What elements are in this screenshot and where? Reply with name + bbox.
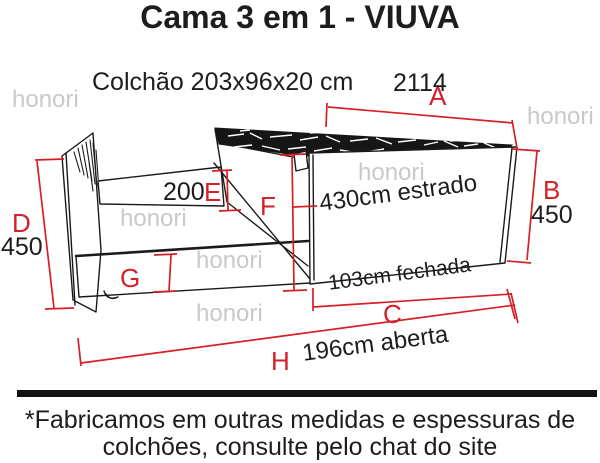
dim-a-label: A [429, 83, 446, 109]
divider-bar [17, 390, 597, 397]
mattress-spec: Colchão 203x96x20 cm [92, 70, 353, 95]
watermark: honori [196, 302, 263, 326]
dim-e-label: E [204, 179, 221, 205]
trundle-outline [76, 256, 310, 297]
watermark: honori [12, 88, 79, 112]
footer-note: *Fabricamos em outras medidas e espessur… [0, 407, 600, 461]
watermark: honori [527, 105, 594, 129]
dim-c-label: C [383, 301, 402, 327]
dim-d-value: 450 [1, 235, 43, 260]
footer-line1: *Fabricamos em outras medidas e espessur… [0, 407, 600, 434]
dim-e-value: 200 [163, 180, 205, 205]
watermark: honori [120, 207, 187, 231]
page-title: Cama 3 em 1 - VIUVA [0, 1, 600, 33]
trundle-top-edge [76, 241, 308, 256]
footer-line2: colchões, consulte pelo chat do site [0, 434, 600, 461]
dim-g-label: G [120, 265, 140, 291]
dim-line-G [153, 254, 177, 292]
dim-b-value: 450 [531, 203, 573, 228]
dim-b-label: B [543, 177, 560, 203]
dim-line-H [78, 293, 518, 366]
watermark: honori [196, 249, 263, 273]
estrado-leader-line [293, 206, 317, 207]
headboard-panel [62, 133, 101, 312]
dim-f-label: F [260, 193, 276, 219]
product-diagram-page: honori honori honori honori honori honor… [0, 0, 600, 463]
dim-h-label: H [271, 348, 290, 374]
